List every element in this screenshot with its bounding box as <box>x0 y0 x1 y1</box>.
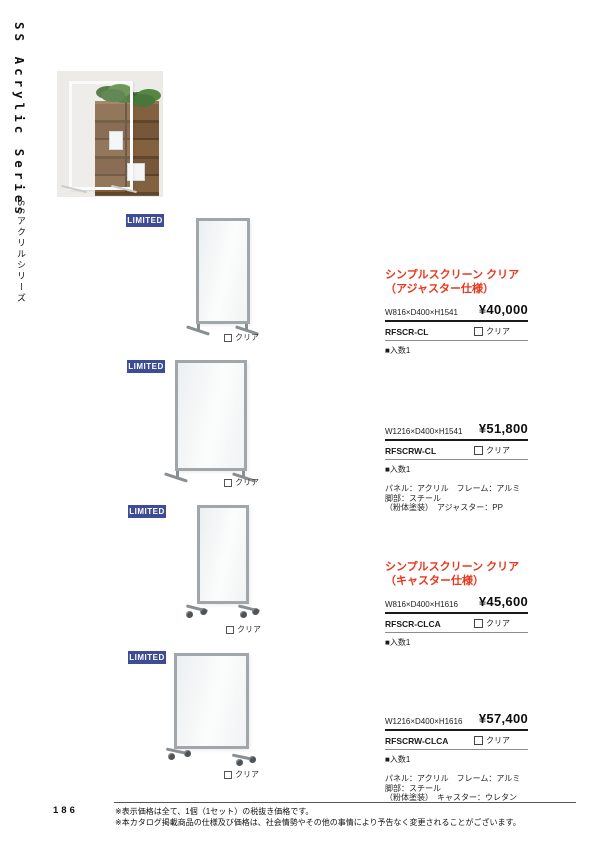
code-color-row: RFSCR-CL クリア <box>385 322 528 341</box>
product-price: ¥51,800 <box>479 421 528 436</box>
color-option: クリア <box>474 618 510 629</box>
caption-label: クリア <box>235 477 259 488</box>
product-size: W1216×D400×H1616 <box>385 717 462 726</box>
product-image-screen-2 <box>175 360 247 471</box>
hero-photo <box>57 71 163 197</box>
hero-plant <box>131 94 155 107</box>
product-size: W816×D400×H1541 <box>385 308 458 317</box>
product-info-2: W1216×D400×H1541 ¥51,800 RFSCRW-CL クリア ■… <box>385 421 528 513</box>
size-price-row: W816×D400×H1541 ¥40,000 <box>385 302 528 322</box>
product-image-screen-1 <box>196 218 250 324</box>
product-code: RFSCR-CLCA <box>385 619 441 629</box>
product-title-line2: （キャスター仕様） <box>385 575 528 589</box>
size-price-row: W1216×D400×H1616 ¥57,400 <box>385 711 528 731</box>
figure-caption: クリア <box>224 769 259 780</box>
size-price-row: W1216×D400×H1541 ¥51,800 <box>385 421 528 441</box>
code-color-row: RFSCR-CLCA クリア <box>385 614 528 633</box>
hero-acrylic-screen <box>69 81 133 190</box>
material-spec-line1: パネル：アクリル フレーム：アルミ 脚部：スチール <box>385 774 528 793</box>
caster-wheel <box>236 759 243 766</box>
limited-badge: LIMITED <box>126 214 164 227</box>
product-size: W816×D400×H1616 <box>385 600 458 609</box>
material-spec: パネル：アクリル フレーム：アルミ 脚部：スチール （粉体塗装） キャスター：ウ… <box>385 774 528 803</box>
product-title-line1: シンプルスクリーン クリア <box>385 561 528 575</box>
product-price: ¥57,400 <box>479 711 528 726</box>
limited-badge: LIMITED <box>128 651 166 664</box>
color-option: クリア <box>474 445 510 456</box>
product-info-3: シンプルスクリーン クリア （キャスター仕様） W816×D400×H1616 … <box>385 561 528 648</box>
quantity-note: ■入数1 <box>385 345 528 356</box>
material-spec-line2: （粉体塗装） アジャスター：PP <box>385 503 528 513</box>
limited-badge: LIMITED <box>128 505 166 518</box>
product-title-line2: （アジャスター仕様） <box>385 283 528 297</box>
footer-note-disclaimer: ※本カタログ掲載商品の仕様及び価格は、社会情勢やその他の事情により予告なく変更さ… <box>115 817 590 828</box>
caster-wheel <box>240 611 247 618</box>
checkbox-icon <box>224 479 232 487</box>
page-number: 186 <box>53 805 78 816</box>
footer-note-price: ※表示価格は全て、1個（1セット）の税抜き価格です。 <box>115 806 590 817</box>
product-title-line1: シンプルスクリーン クリア <box>385 269 528 283</box>
product-image-screen-4 <box>174 653 249 749</box>
product-price: ¥45,600 <box>479 594 528 609</box>
series-title-en: SS Acrylic Series <box>12 22 27 202</box>
quantity-note: ■入数1 <box>385 754 528 765</box>
caster-wheel <box>249 756 256 763</box>
caption-label: クリア <box>235 332 259 343</box>
footer-notes: ※表示価格は全て、1個（1セット）の税抜き価格です。 ※本カタログ掲載商品の仕様… <box>115 806 590 828</box>
figure-caption: クリア <box>224 477 259 488</box>
product-code: RFSCRW-CLCA <box>385 736 448 746</box>
product-title: シンプルスクリーン クリア （アジャスター仕様） <box>385 269 528 296</box>
checkbox-icon <box>474 327 483 336</box>
checkbox-icon <box>474 736 483 745</box>
checkbox-icon <box>474 619 483 628</box>
figure-caption: クリア <box>226 624 261 635</box>
checkbox-icon <box>226 626 234 634</box>
checkbox-icon <box>224 771 232 779</box>
color-option: クリア <box>474 326 510 337</box>
quantity-note: ■入数1 <box>385 464 528 475</box>
caption-label: クリア <box>235 769 259 780</box>
product-image-screen-3 <box>197 505 249 604</box>
quantity-note: ■入数1 <box>385 637 528 648</box>
caster-wheel <box>184 750 191 757</box>
color-option-label: クリア <box>486 445 510 456</box>
size-price-row: W816×D400×H1616 ¥45,600 <box>385 594 528 614</box>
footer-divider <box>114 802 576 803</box>
product-code: RFSCR-CL <box>385 327 428 337</box>
figure-caption: クリア <box>224 332 259 343</box>
color-option-label: クリア <box>486 735 510 746</box>
checkbox-icon <box>224 334 232 342</box>
product-info-1: シンプルスクリーン クリア （アジャスター仕様） W816×D400×H1541… <box>385 269 528 356</box>
product-price: ¥40,000 <box>479 302 528 317</box>
code-color-row: RFSCRW-CL クリア <box>385 441 528 460</box>
color-option-label: クリア <box>486 618 510 629</box>
product-title: シンプルスクリーン クリア （キャスター仕様） <box>385 561 528 588</box>
caster-wheel <box>200 608 207 615</box>
series-title-ja: SSアクリルシリーズ <box>15 200 28 310</box>
product-size: W1216×D400×H1541 <box>385 427 462 436</box>
product-code: RFSCRW-CL <box>385 446 436 456</box>
caster-wheel <box>252 608 259 615</box>
checkbox-icon <box>474 446 483 455</box>
caster-wheel <box>168 753 175 760</box>
material-spec-line1: パネル：アクリル フレーム：アルミ 脚部：スチール <box>385 484 528 503</box>
material-spec: パネル：アクリル フレーム：アルミ 脚部：スチール （粉体塗装） アジャスター：… <box>385 484 528 513</box>
caster-wheel <box>186 611 193 618</box>
code-color-row: RFSCRW-CLCA クリア <box>385 731 528 750</box>
color-option-label: クリア <box>486 326 510 337</box>
limited-badge: LIMITED <box>127 360 165 373</box>
caption-label: クリア <box>237 624 261 635</box>
product-info-4: W1216×D400×H1616 ¥57,400 RFSCRW-CLCA クリア… <box>385 711 528 803</box>
color-option: クリア <box>474 735 510 746</box>
